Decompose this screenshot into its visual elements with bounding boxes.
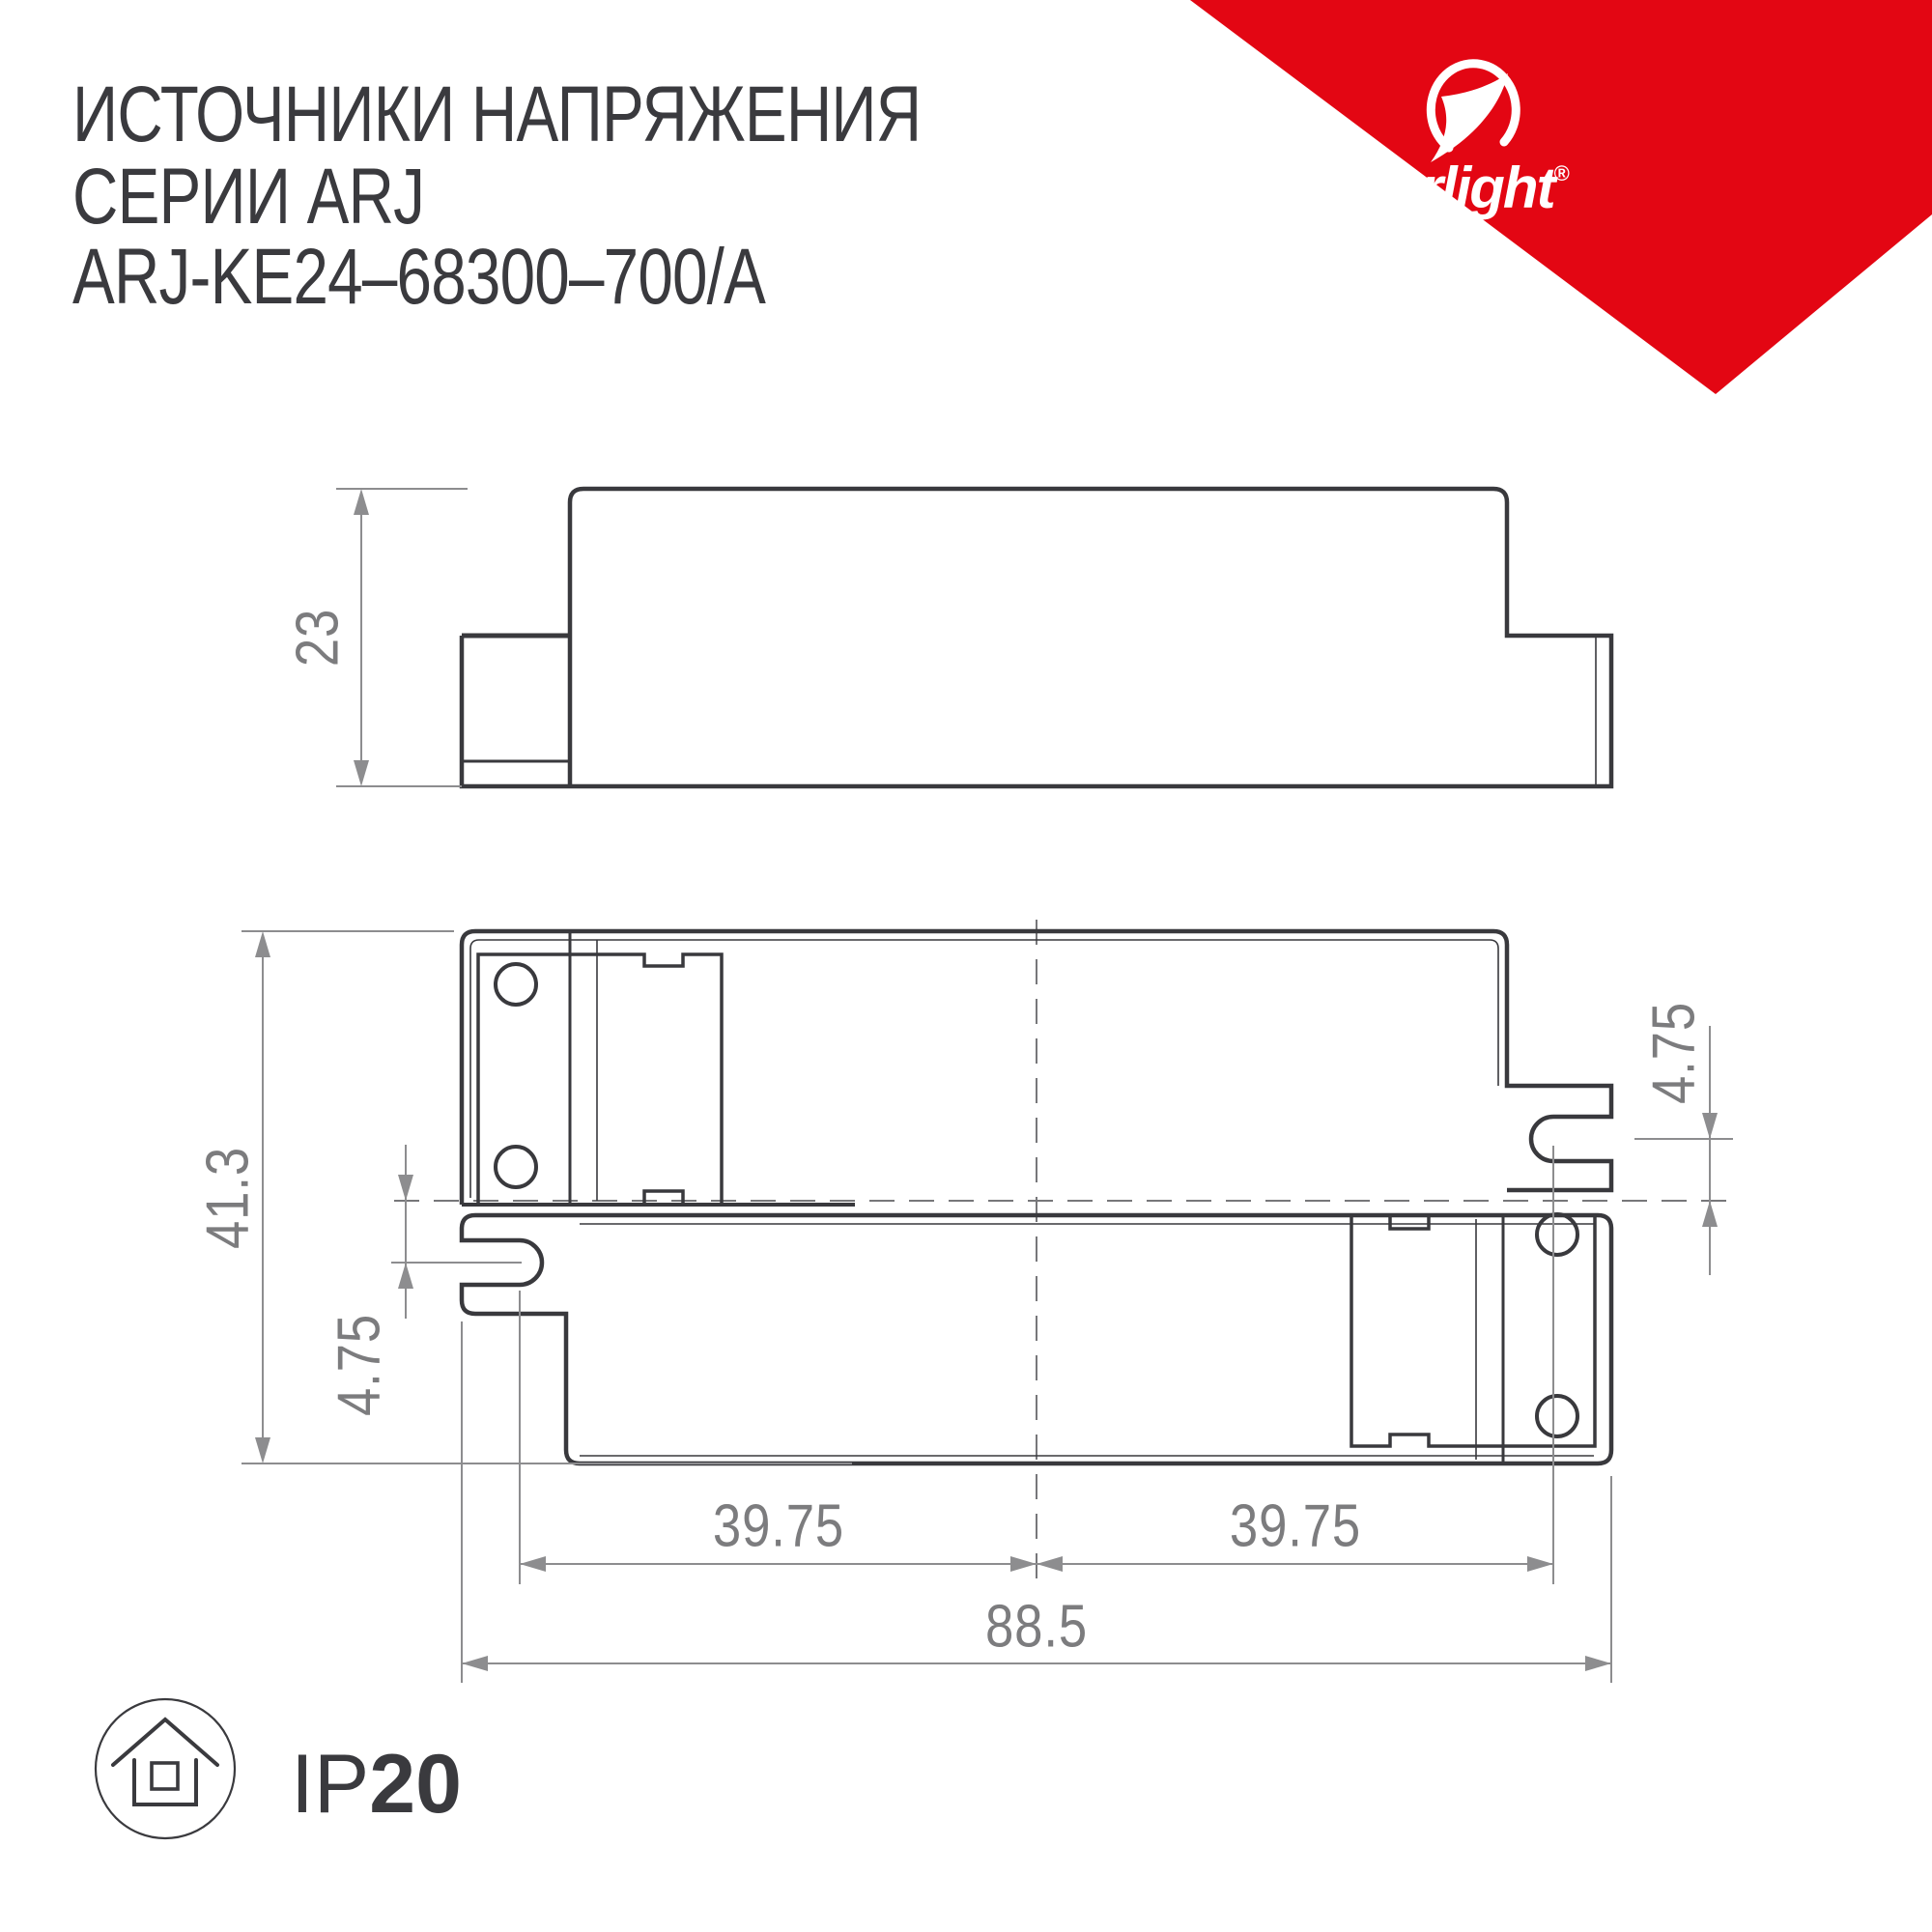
dim-label-slot-spacing-right: 39.75	[1230, 1492, 1361, 1561]
ip20-badge-icon	[96, 1699, 235, 1838]
technical-drawing	[0, 0, 1932, 1932]
dim-23-lines	[336, 489, 468, 786]
top-view-centerlines	[394, 920, 1729, 1586]
wire-hole-top-1	[496, 964, 536, 1005]
ip-prefix: IP	[291, 1738, 369, 1831]
ip-rating: IP20	[291, 1737, 462, 1833]
dim-label-overall-height: 41.3	[194, 1147, 263, 1249]
lower-terminal-block	[1351, 1215, 1595, 1446]
dim-label-slot-offset-right: 4.75	[1640, 1002, 1709, 1104]
dim-label-slot-spacing-left: 39.75	[713, 1492, 844, 1561]
datasheet-page: ИСТОЧНИКИ НАПРЯЖЕНИЯ СЕРИИ ARJ ARJ-KE24–…	[0, 0, 1932, 1932]
upper-terminal-block	[478, 954, 722, 1205]
house-icon	[113, 1719, 217, 1804]
side-view	[462, 489, 1611, 786]
upper-shell-inner-line	[470, 940, 1498, 1198]
ip-value: 20	[369, 1738, 462, 1831]
wire-hole-bottom-1	[1537, 1214, 1577, 1255]
dim-label-slot-offset-left: 4.75	[326, 1314, 394, 1416]
side-view-outline	[462, 489, 1611, 786]
dim-label-side-height: 23	[284, 609, 353, 667]
lower-shell-inner-lines	[580, 1224, 1594, 1456]
wire-hole-top-2	[496, 1147, 536, 1187]
dim-label-overall-width: 88.5	[985, 1593, 1088, 1662]
wire-hole-bottom-2	[1537, 1396, 1577, 1436]
